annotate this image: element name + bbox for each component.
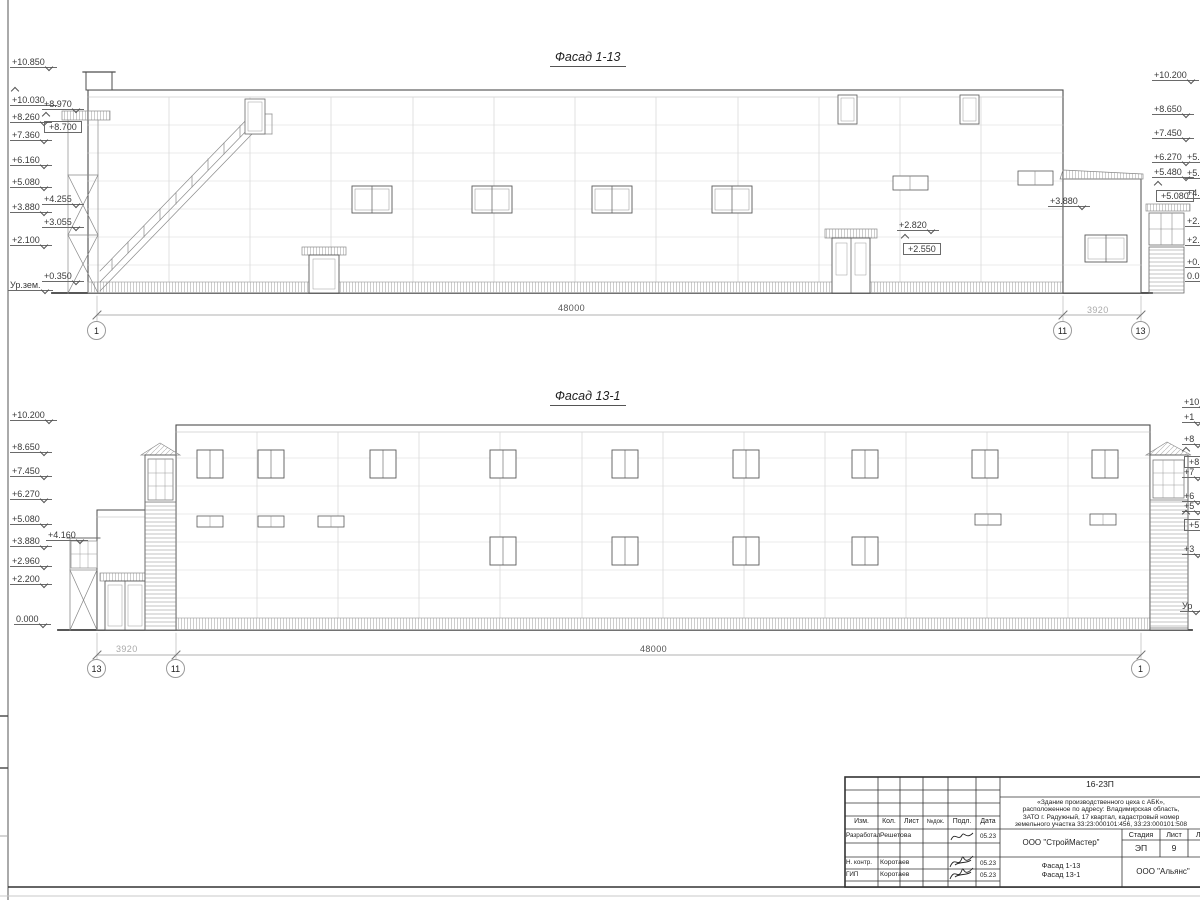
dimension-value: 48000 [558, 303, 585, 313]
object-name: «Здание производственного цеха с АБК», р… [1002, 799, 1200, 829]
dimension-value: 3920 [1087, 305, 1109, 315]
sheets-value: 1 [1188, 844, 1200, 854]
dimension-value: 3920 [116, 644, 138, 654]
elevation-mark: +7.360 [10, 130, 52, 141]
elevation-mark: +7.450 [10, 466, 52, 477]
tb-col-header: №док. [923, 819, 948, 826]
elevation-mark: +2.550 [903, 243, 941, 255]
elevation-mark: +10.850 [10, 57, 57, 68]
tb-date: 05.23 [976, 833, 1000, 840]
tb-name: Решетова [880, 832, 923, 840]
tb-col-header: Подл. [948, 818, 976, 826]
dimension-value: 48000 [640, 644, 667, 654]
elevation-mark: +5.080 [10, 177, 52, 188]
object-name-line: ЗАТО г. Радужный, 17 квартал, кадастровы… [1002, 814, 1200, 821]
elevation-mark: +2.820 [897, 220, 939, 231]
elevation-mark: +8.650 [10, 442, 52, 453]
elevation-mark: +3.880 [1048, 196, 1090, 207]
elevation-mark: +4. [1185, 188, 1200, 199]
elevation-mark: +0. [1185, 257, 1200, 268]
elevation-mark: +8.650 [1152, 104, 1194, 115]
elevation-mark: +10 [1182, 397, 1200, 408]
client-org: ООО "Альянс" [1122, 868, 1200, 877]
drawing-title: Фасад 13-1 [1000, 871, 1122, 879]
elevation-mark: +7.450 [1152, 128, 1194, 139]
elevation-mark: +8 [1182, 434, 1200, 445]
designer-org: ООО "СтройМастер" [1000, 839, 1122, 848]
elevation-mark: +10.200 [10, 410, 57, 421]
sheets-label: Лис [1188, 831, 1200, 839]
facade2-dimension-lines [93, 633, 1145, 660]
facade1-annex [1060, 170, 1190, 293]
elevation-mark: +5 [1184, 519, 1200, 531]
facade-13-1-drawing [58, 425, 1192, 660]
facade-1-13-drawing [52, 72, 1190, 322]
axis-bubble: 1 [1131, 659, 1150, 678]
tb-name: Коротаев [880, 859, 923, 867]
stage-value: ЭП [1122, 844, 1160, 854]
axis-bubble: 11 [166, 659, 185, 678]
axis-bubble: 1 [87, 321, 106, 340]
elevation-mark: +6.160 [10, 155, 52, 166]
facade-1-13-title: Фасад 1-13 [550, 50, 626, 67]
elevation-mark: +8.970 [42, 99, 84, 110]
tb-col-header: Изм. [845, 818, 878, 826]
tb-role: Н. контр. [846, 859, 878, 866]
elevation-mark: +2. [1185, 216, 1200, 227]
elevation-mark: +4.160 [46, 530, 88, 541]
elevation-mark: +2.100 [10, 235, 52, 246]
tb-role: ГИП [846, 871, 878, 878]
facade-13-1-title: Фасад 13-1 [550, 389, 626, 406]
elevation-mark: +2.200 [10, 574, 52, 585]
doc-number: 16-23П [1000, 780, 1200, 790]
tb-col-header: Лист [900, 818, 923, 826]
sheet-value: 9 [1160, 844, 1188, 854]
elevation-mark: +2. [1185, 235, 1200, 246]
axis-bubble: 13 [87, 659, 106, 678]
elevation-mark: +7 [1182, 467, 1200, 478]
elevation-mark: +3.880 [10, 202, 52, 213]
object-name-line: расположенное по адресу: Владимирская об… [1002, 806, 1200, 813]
elevation-mark: +5. [1185, 152, 1200, 163]
elevation-mark: +6.270 [10, 489, 52, 500]
elevation-mark: +2.960 [10, 556, 52, 567]
tb-date: 05.23 [976, 872, 1000, 879]
facade1-dimension-lines [93, 296, 1145, 322]
tb-col-header: Дата [976, 818, 1000, 826]
elevation-mark: 0.000 [14, 614, 51, 625]
axis-bubble: 11 [1053, 321, 1072, 340]
tb-date: 05.23 [976, 860, 1000, 867]
elevation-mark: Ур [1180, 601, 1200, 612]
object-name-line: земельного участка 33:23:000101:456, 33:… [1002, 821, 1200, 828]
elevation-mark: +3 [1182, 544, 1200, 555]
tb-name: Коротаев [880, 871, 923, 879]
elevation-mark: Ур.зем. [8, 280, 53, 291]
elevation-mark: +10.200 [1152, 70, 1199, 81]
tb-col-header: Кол. [878, 818, 900, 826]
signature-icon [949, 829, 975, 844]
tb-role: Разработал [846, 832, 878, 839]
elevation-mark: +3.055 [42, 217, 84, 228]
elevation-mark: +5.080 [10, 514, 52, 525]
elevation-mark: +1 [1182, 412, 1200, 423]
stage-label: Стадия [1122, 831, 1160, 839]
axis-bubble: 13 [1131, 321, 1150, 340]
elevation-mark: 0.0 [1185, 271, 1200, 282]
elevation-mark: +5. [1185, 168, 1200, 179]
drawing-linework [0, 0, 1200, 900]
signature-icon [948, 865, 976, 883]
sheet-label: Лист [1160, 831, 1188, 839]
